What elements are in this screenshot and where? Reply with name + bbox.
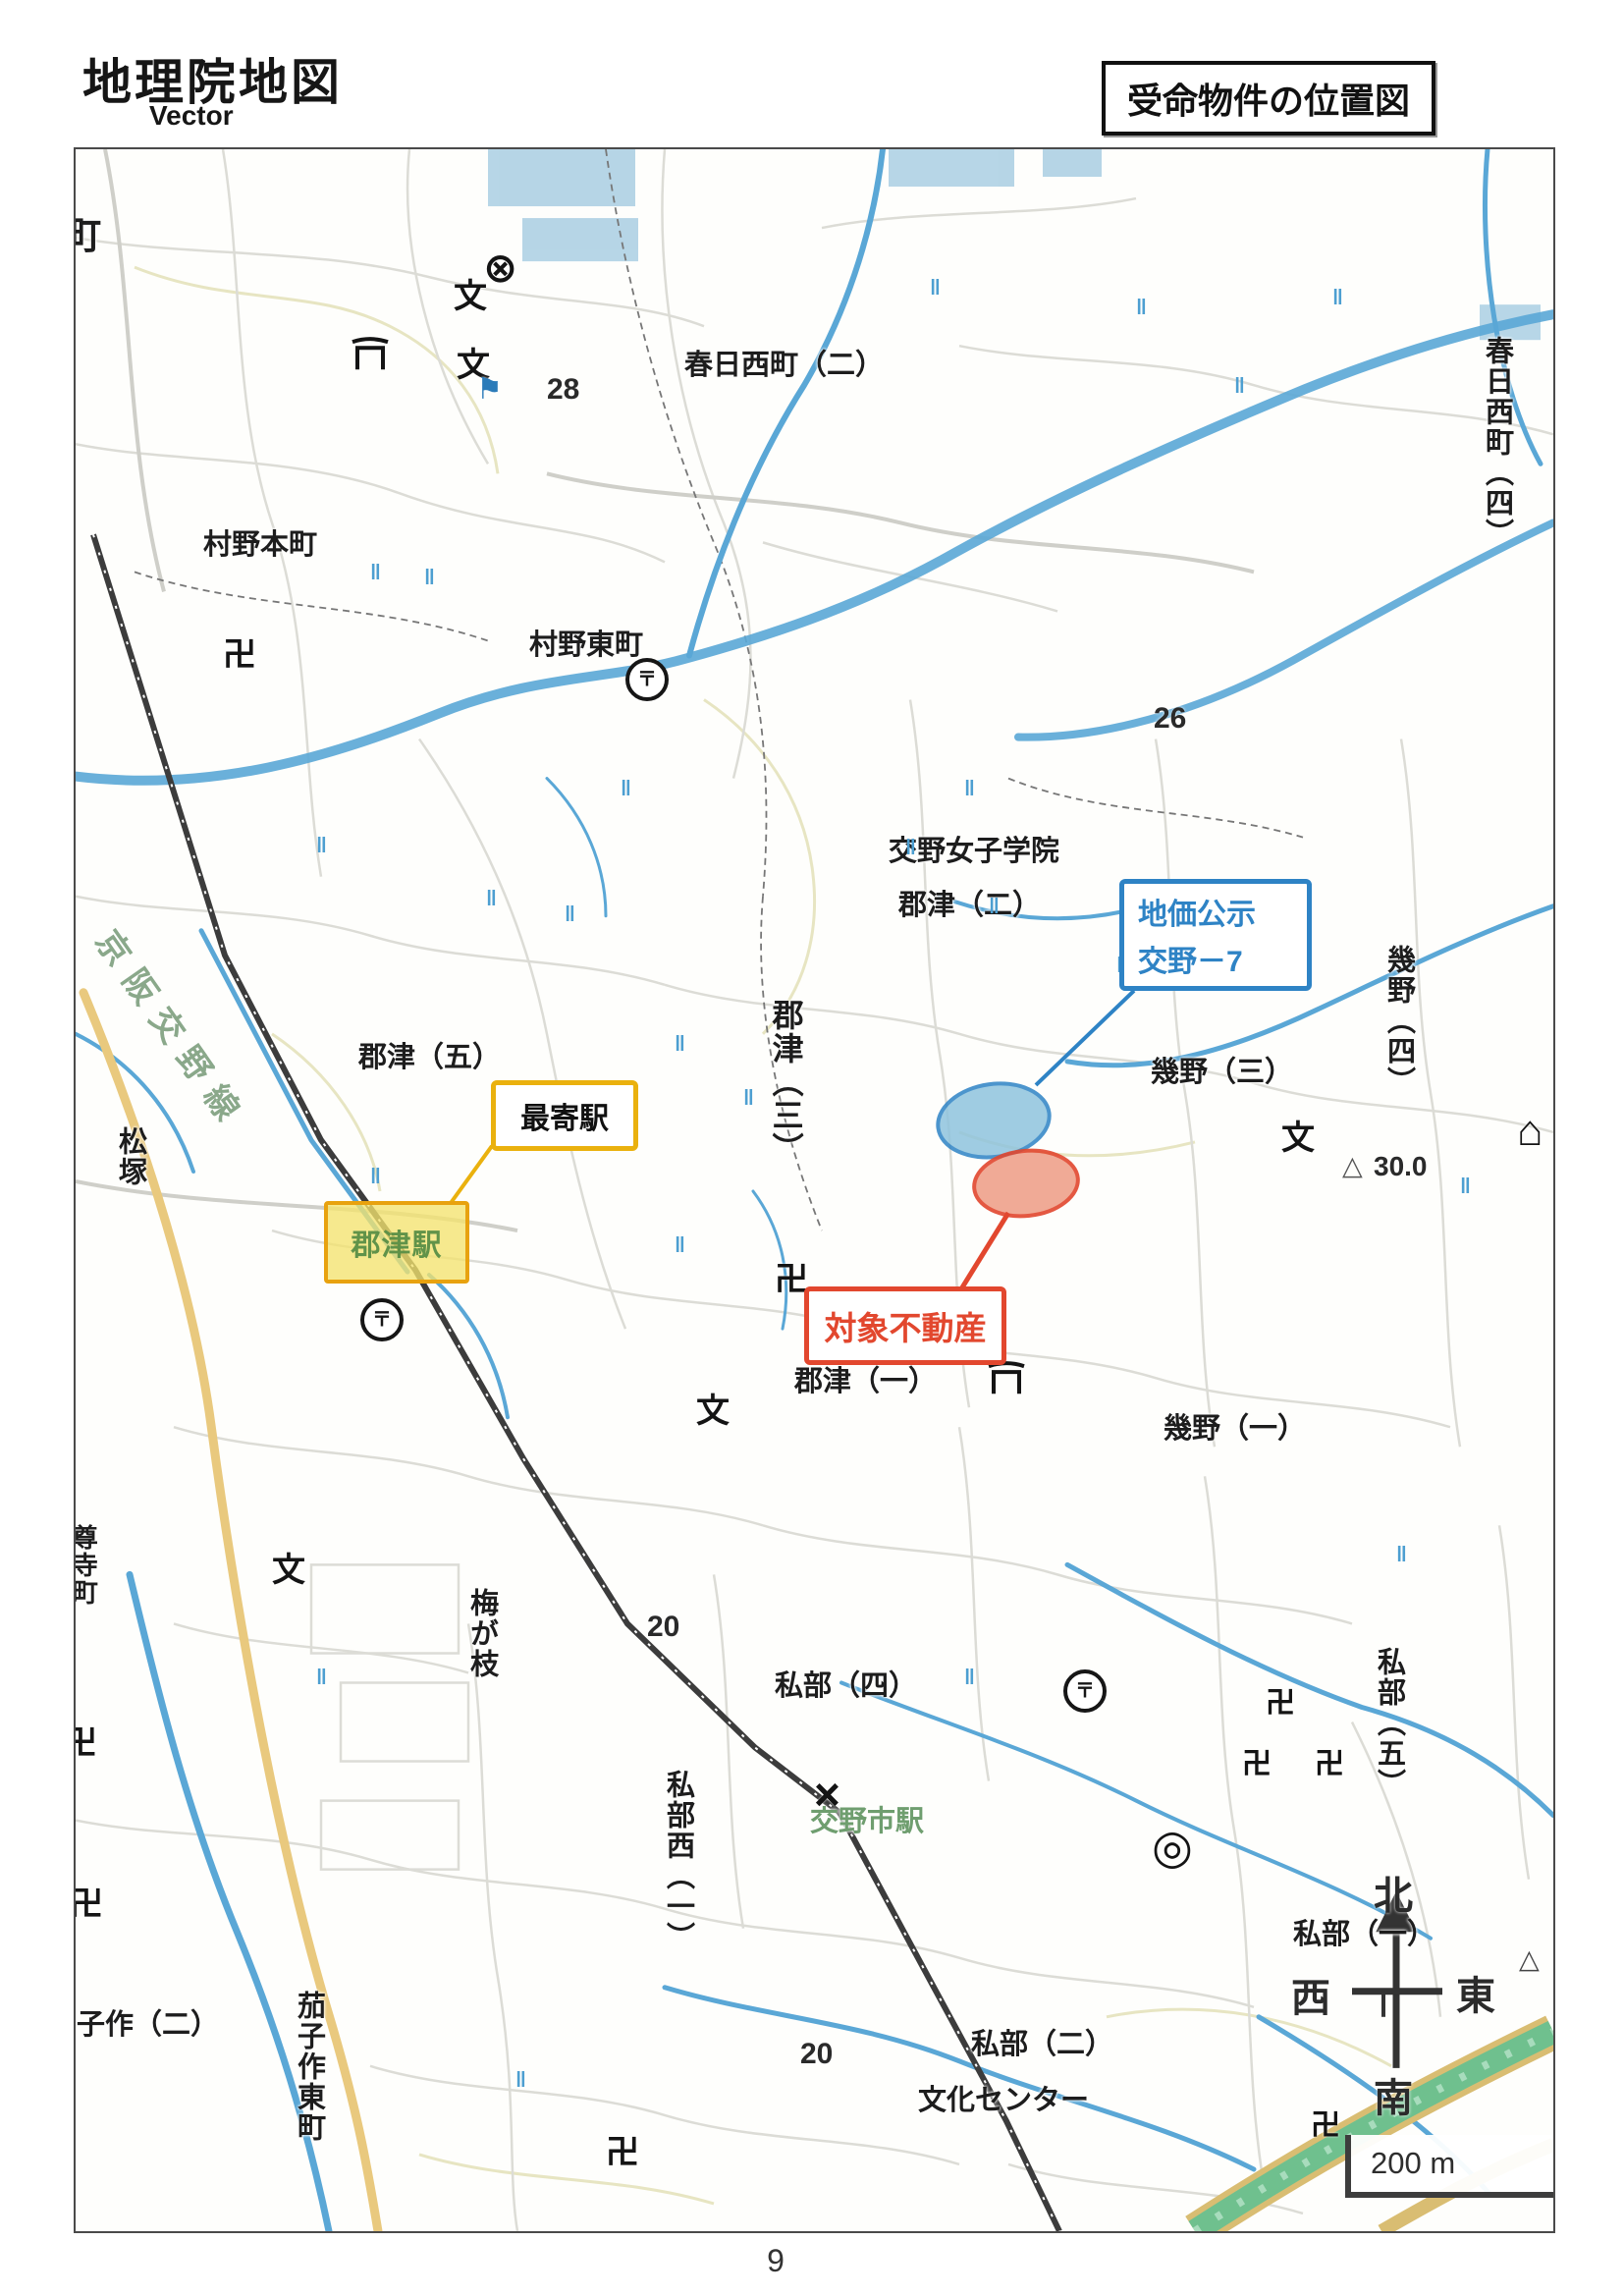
placename-kisabe1: 私部（一） (1293, 1920, 1435, 1949)
scale-bar: 200 m (1345, 2135, 1555, 2198)
placename-matsuzuka: 松塚 (115, 1126, 144, 1187)
placename-kasuganishimachi4: 春日西町（四） (1482, 336, 1511, 549)
spot-elevation: 20 (647, 1611, 679, 1644)
subject-property-callout: 対象不動産 (804, 1286, 1006, 1365)
spot-elevation: 28 (547, 373, 579, 407)
post-office-icon: 〒 (625, 658, 669, 701)
placename-kozu1: 郡津（一） (794, 1367, 937, 1396)
paddy-field-icon: ‖ (1460, 1175, 1471, 1197)
placename-kisabe4: 私部（四） (775, 1671, 917, 1701)
placename-muranohigashimachi: 村野東町 (529, 630, 643, 660)
paddy-field-icon: ‖ (675, 1033, 685, 1055)
building-icon: ⌂ (1517, 1110, 1543, 1153)
boundary-lines (135, 149, 1303, 1230)
temple-icon: 卍 (74, 1887, 103, 1921)
placename-kisabe5: 私部（五） (1374, 1647, 1403, 1799)
paddy-field-icon: ‖ (905, 837, 916, 858)
school-icon: 文 (272, 1554, 305, 1587)
placename-nasuzaku2: 茄子作（二） (74, 2010, 219, 2040)
paddy-field-icon: ‖ (424, 567, 435, 588)
spot-elevation: 20 (800, 2038, 833, 2071)
placename-left-edge-partial: 尊寺町 (74, 1524, 96, 1607)
temple-icon: 卍 (1311, 2111, 1340, 2141)
flag-icon: ⚑ (476, 375, 503, 405)
nearest-station-highlight: 郡津駅 (324, 1201, 469, 1284)
paddy-field-icon: ‖ (316, 1667, 327, 1688)
paddy-field-icon: ‖ (621, 778, 631, 799)
compass-east-label: 東 (1456, 1964, 1495, 2021)
triangulation-point-icon: △ (1519, 1946, 1540, 1973)
school-icon: 文 (454, 280, 487, 313)
paddy-field-icon: ‖ (1332, 287, 1343, 308)
temple-icon: 卍 (1315, 1750, 1344, 1779)
page-number: 9 (0, 2243, 1551, 2279)
land-price-callout: 地価公示 交野－7 (1119, 879, 1312, 991)
paddy-field-icon: ‖ (989, 896, 1000, 917)
placename-umegaeda: 梅が枝 (466, 1588, 496, 1679)
post-office-icon: 〒 (360, 1298, 404, 1341)
spot-elevation: 26 (1154, 702, 1186, 736)
temple-icon: 卍 (74, 1726, 97, 1760)
placename-kasuganishimachi2: 春日西町（二） (684, 351, 884, 380)
report-page: { "page": { "number": "9" }, "header": {… (0, 0, 1624, 2296)
temple-icon: 卍 (775, 1263, 808, 1296)
paddy-field-icon: ‖ (930, 277, 941, 299)
paddy-field-icon: ‖ (1136, 297, 1147, 318)
paddy-field-icon: ‖ (370, 1166, 381, 1187)
paddy-field-icon: ‖ (964, 1667, 975, 1688)
police-station-icon: ⊗ (483, 247, 517, 289)
land-price-leader-line (1036, 991, 1134, 1085)
compass-south-label: 南 (1374, 2066, 1413, 2123)
temple-icon: 卍 (1242, 1750, 1272, 1779)
paddy-field-icon: ‖ (1234, 375, 1245, 397)
station-name-kozu: 郡津駅 (352, 1221, 443, 1264)
temple-icon: 卍 (223, 638, 256, 672)
document-title-box: 受命物件の位置図 (1102, 61, 1435, 136)
placename-ikuno3: 幾野（三） (1151, 1058, 1293, 1087)
paddy-field-icon: ‖ (743, 1087, 754, 1109)
paddy-field-icon: ‖ (486, 888, 497, 909)
placename-bunka-center: 文化センター (918, 2086, 1089, 2115)
temple-icon: 卍 (606, 2136, 639, 2169)
paddy-field-icon: ‖ (964, 778, 975, 799)
page-subtitle: Vector (149, 100, 234, 132)
school-icon: 文 (1281, 1121, 1315, 1155)
placename-partial: 町 (74, 218, 101, 257)
map-canvas: 町 村野本町 村野東町 春日西町（二） 春日西町（四） 交野女子学院 郡津（二）… (74, 147, 1555, 2233)
spot-elevation: 30.0 (1374, 1151, 1428, 1182)
paddy-field-icon: ‖ (1396, 1544, 1407, 1565)
compass-west-label: 西 (1291, 1966, 1330, 2023)
placename-ikuno1: 幾野（一） (1164, 1414, 1306, 1444)
station-leader-line (451, 1146, 492, 1203)
field-outlines (135, 267, 1391, 2204)
placename-muranohonmachi: 村野本町 (203, 530, 317, 560)
temple-icon: 卍 (1266, 1689, 1295, 1719)
triangulation-point-icon: △ (1342, 1153, 1363, 1179)
compass-north-label: 北 (1374, 1864, 1413, 1921)
scale-label: 200 m (1371, 2146, 1455, 2181)
post-office-icon: 〒 (1063, 1669, 1107, 1713)
placename-kisabe2: 私部（二） (971, 2030, 1113, 2059)
placename-ikuno4: 幾野（四） (1383, 945, 1413, 1097)
placename-kozu5: 郡津（五） (358, 1043, 501, 1072)
expressway (1195, 2032, 1553, 2231)
placename-nasuzakuhigashimachi: 茄子作東町 (294, 1991, 323, 2143)
police-box-icon: × (814, 1772, 840, 1817)
placename-kozu3: 郡津（三） (769, 999, 802, 1166)
city-office-icon: ◎ (1152, 1825, 1193, 1872)
paddy-field-icon: ‖ (515, 2069, 526, 2091)
placename-kozu2: 郡津（二） (898, 891, 1041, 920)
paddy-field-icon: ‖ (316, 835, 327, 856)
paddy-field-icon: ‖ (675, 1234, 685, 1256)
nearest-station-callout: 最寄駅 (491, 1080, 638, 1151)
school-icon: 文 (696, 1394, 730, 1428)
paddy-field-icon: ‖ (370, 562, 381, 583)
subject-leader-line (962, 1213, 1008, 1287)
paddy-field-icon: ‖ (565, 903, 575, 925)
placename-kisabenishi1: 私部西（一） (663, 1770, 692, 1952)
